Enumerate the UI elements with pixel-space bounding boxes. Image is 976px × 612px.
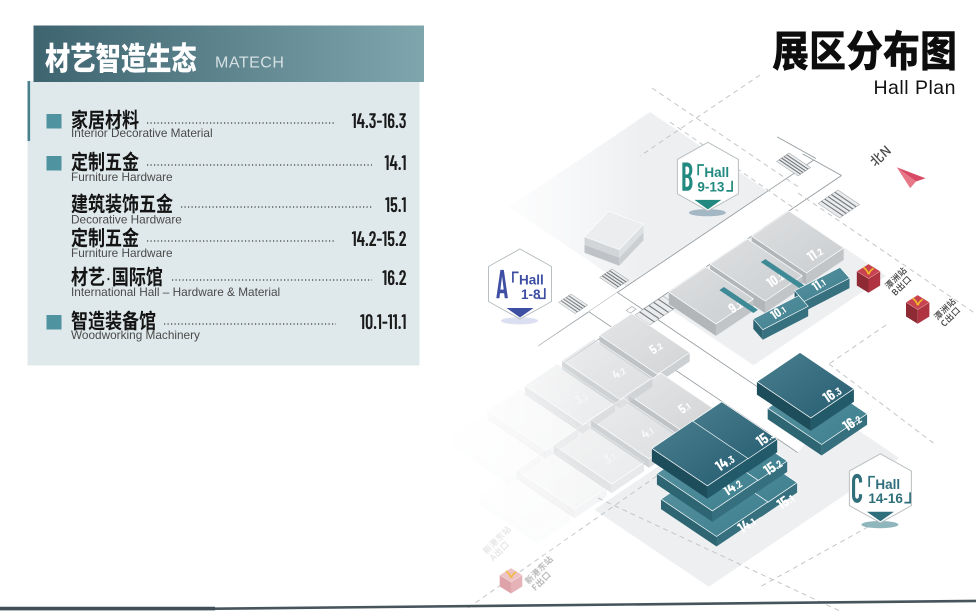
svg-text:Hall: Hall: [875, 477, 900, 492]
svg-text:International Hall – Hardware: International Hall – Hardware & Material: [71, 285, 280, 299]
svg-text:Decorative Hardware: Decorative Hardware: [71, 213, 182, 227]
svg-text:Furniture Hardware: Furniture Hardware: [71, 170, 173, 184]
svg-text:1-8: 1-8: [521, 287, 541, 302]
svg-text:Hall: Hall: [519, 273, 544, 288]
svg-text:Woodworking Machinery: Woodworking Machinery: [71, 328, 200, 342]
svg-text:Furniture Hardware: Furniture Hardware: [71, 246, 173, 260]
svg-text:MATECH: MATECH: [215, 55, 284, 72]
svg-text:14-16: 14-16: [868, 491, 903, 506]
svg-text:Hall Plan: Hall Plan: [873, 77, 956, 99]
svg-text:9-13: 9-13: [697, 179, 725, 194]
svg-text:Interior Decorative Material: Interior Decorative Material: [71, 126, 213, 140]
svg-text:Hall: Hall: [704, 165, 729, 180]
